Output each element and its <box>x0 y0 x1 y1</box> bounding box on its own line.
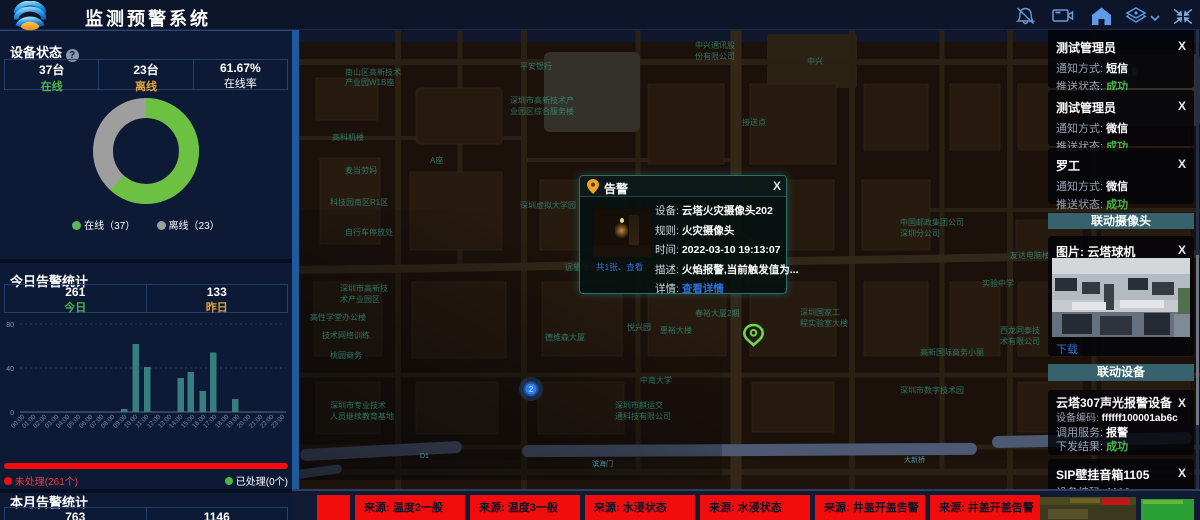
svg-text:人员继续教育基地: 人员继续教育基地 <box>330 411 394 421</box>
svg-text:春裕大厦2期: 春裕大厦2期 <box>695 308 739 318</box>
svg-text:产业园W1B座: 产业园W1B座 <box>345 77 394 87</box>
svg-text:悦兴园: 悦兴园 <box>627 322 651 332</box>
svg-text:深圳市数字技术园: 深圳市数字技术园 <box>900 385 964 395</box>
svg-text:中兴: 中兴 <box>807 56 823 66</box>
svg-text:深圳虚拟大学园: 深圳虚拟大学园 <box>520 200 576 210</box>
svg-text:南山区高新技术: 南山区高新技术 <box>345 67 401 77</box>
svg-text:大新桥: 大新桥 <box>904 455 925 464</box>
svg-text:平安银行: 平安银行 <box>520 61 552 71</box>
svg-text:A座: A座 <box>430 155 443 165</box>
svg-text:惠裕大楼: 惠裕大楼 <box>660 325 692 335</box>
svg-text:80: 80 <box>6 322 14 329</box>
svg-text:深圳市专业技术: 深圳市专业技术 <box>330 400 386 410</box>
svg-text:中兴通讯股: 中兴通讯股 <box>695 40 735 50</box>
svg-text:桃园商务: 桃园商务 <box>330 350 362 360</box>
svg-text:深圳分公司: 深圳分公司 <box>900 228 940 238</box>
svg-text:深圳市麒运交: 深圳市麒运交 <box>615 400 663 410</box>
svg-text:自行车停放处: 自行车停放处 <box>345 227 393 237</box>
svg-text:40: 40 <box>6 366 14 373</box>
svg-text:德维森大厦: 德维森大厦 <box>545 332 585 342</box>
svg-text:D1: D1 <box>420 453 429 460</box>
svg-text:高新国际商务小丽: 高新国际商务小丽 <box>920 347 984 357</box>
svg-text:友达电脑楼: 友达电脑楼 <box>1010 250 1050 260</box>
svg-text:深圳市高新技: 深圳市高新技 <box>340 283 388 293</box>
svg-text:高性学堂办公楼: 高性学堂办公楼 <box>310 312 366 322</box>
svg-text:科技园南区R1区: 科技园南区R1区 <box>330 197 388 207</box>
svg-text:技术网络训练: 技术网络训练 <box>322 330 370 340</box>
svg-text:程实验室大楼: 程实验室大楼 <box>800 318 848 328</box>
svg-text:深圳国家工: 深圳国家工 <box>800 307 840 317</box>
svg-text:术有限公司: 术有限公司 <box>1000 336 1040 346</box>
svg-text:高科机楼: 高科机楼 <box>332 132 364 142</box>
svg-text:滨海门: 滨海门 <box>592 459 613 468</box>
svg-text:份有限公司: 份有限公司 <box>695 51 735 61</box>
svg-text:深圳市高新技术产: 深圳市高新技术产 <box>510 95 574 105</box>
svg-text:实验中学: 实验中学 <box>982 278 1014 288</box>
svg-text:中国邮政集团公司: 中国邮政集团公司 <box>900 217 964 227</box>
svg-text:麦当劳妈: 麦当劳妈 <box>345 165 377 175</box>
svg-text:2: 2 <box>529 385 534 394</box>
svg-text:接送点: 接送点 <box>742 117 766 127</box>
svg-text:业园区综合服务楼: 业园区综合服务楼 <box>510 106 574 116</box>
svg-text:通科技有限公司: 通科技有限公司 <box>615 411 671 421</box>
svg-text:中南大学: 中南大学 <box>640 375 672 385</box>
svg-text:术产业园区: 术产业园区 <box>340 294 380 304</box>
svg-text:西龙同泰技: 西龙同泰技 <box>1000 325 1040 335</box>
svg-text:0: 0 <box>10 410 14 417</box>
